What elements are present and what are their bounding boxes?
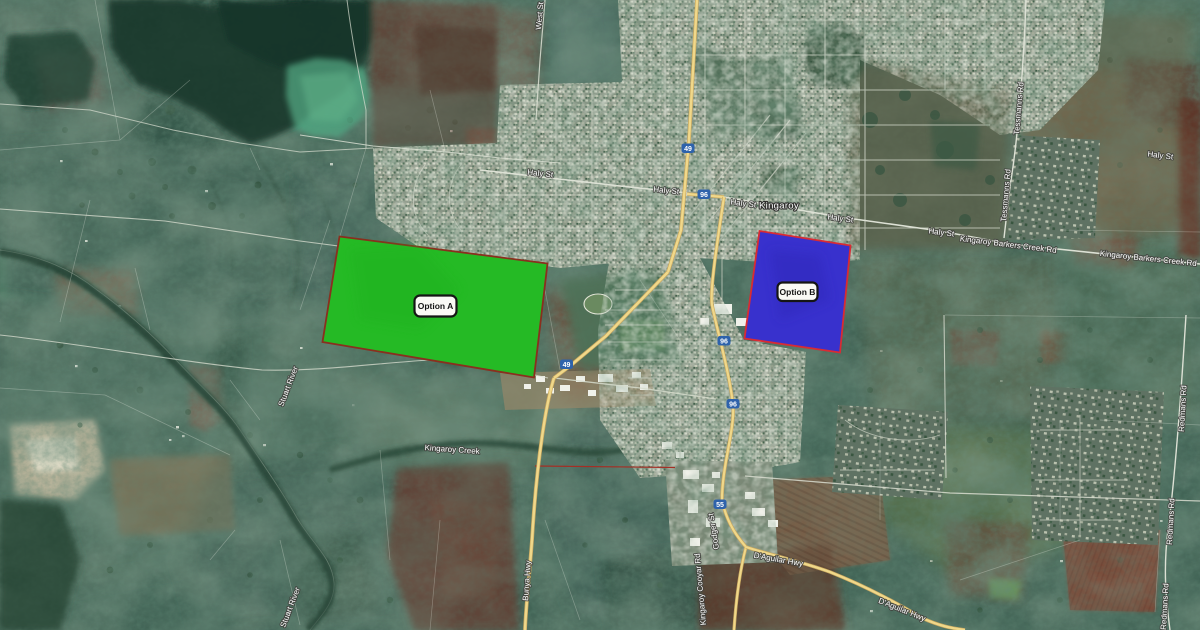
svg-text:96: 96 <box>729 402 737 409</box>
svg-text:Option B: Option B <box>780 287 816 297</box>
svg-text:Option A: Option A <box>418 301 454 311</box>
svg-text:49: 49 <box>684 146 692 153</box>
svg-text:49: 49 <box>563 362 571 369</box>
svg-text:55: 55 <box>716 502 724 509</box>
svg-text:Kingaroy: Kingaroy <box>759 201 799 212</box>
svg-text:96: 96 <box>700 192 708 199</box>
svg-text:96: 96 <box>720 339 728 346</box>
